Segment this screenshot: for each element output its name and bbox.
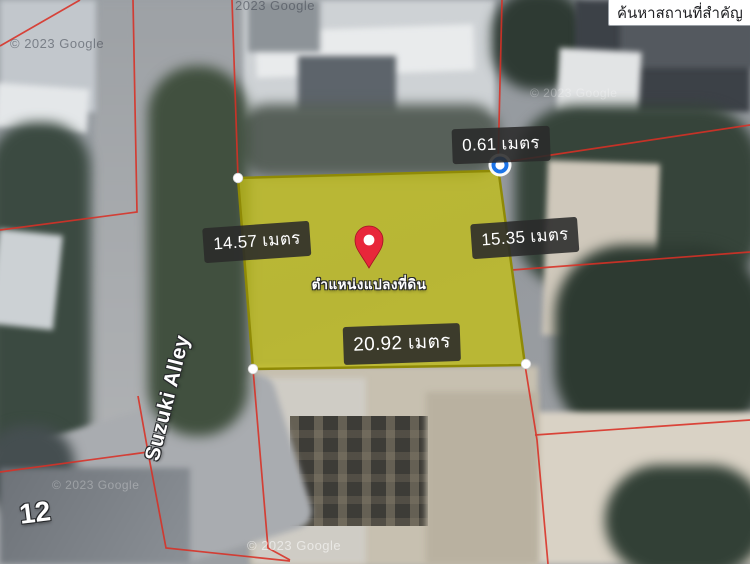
parcel-boundary-line bbox=[512, 252, 750, 270]
google-watermark: © 2023 Google bbox=[247, 538, 341, 553]
measurement-label-top: 0.61 เมตร bbox=[452, 126, 551, 164]
google-watermark: © 2023 Google bbox=[530, 86, 617, 100]
house-number-label: 12 bbox=[18, 495, 53, 531]
vertex-handle-top-left[interactable] bbox=[233, 173, 243, 183]
pin-caption: ตำแหน่งแปลงที่ดิน bbox=[312, 273, 427, 295]
parcel-boundary-line bbox=[0, 452, 148, 472]
parcel-boundary-line bbox=[535, 420, 750, 435]
google-watermark: © 2023 Google bbox=[10, 36, 104, 51]
vertex-handle-bottom-right[interactable] bbox=[521, 359, 531, 369]
vertex-handle-bottom-left[interactable] bbox=[248, 364, 258, 374]
google-watermark: 2023 Google bbox=[235, 0, 315, 13]
satellite-map-canvas[interactable]: 0.61 เมตร 14.57 เมตร 15.35 เมตร 20.92 เม… bbox=[0, 0, 750, 564]
search-input[interactable] bbox=[608, 0, 750, 26]
pin-hole bbox=[364, 235, 375, 246]
measurement-label-right: 15.35 เมตร bbox=[470, 217, 580, 259]
parcel-boundary-line bbox=[525, 365, 548, 564]
google-watermark: © 2023 Google bbox=[52, 478, 139, 492]
measurement-label-bottom: 20.92 เมตร bbox=[343, 323, 462, 365]
measurement-label-left: 14.57 เมตร bbox=[202, 221, 312, 263]
